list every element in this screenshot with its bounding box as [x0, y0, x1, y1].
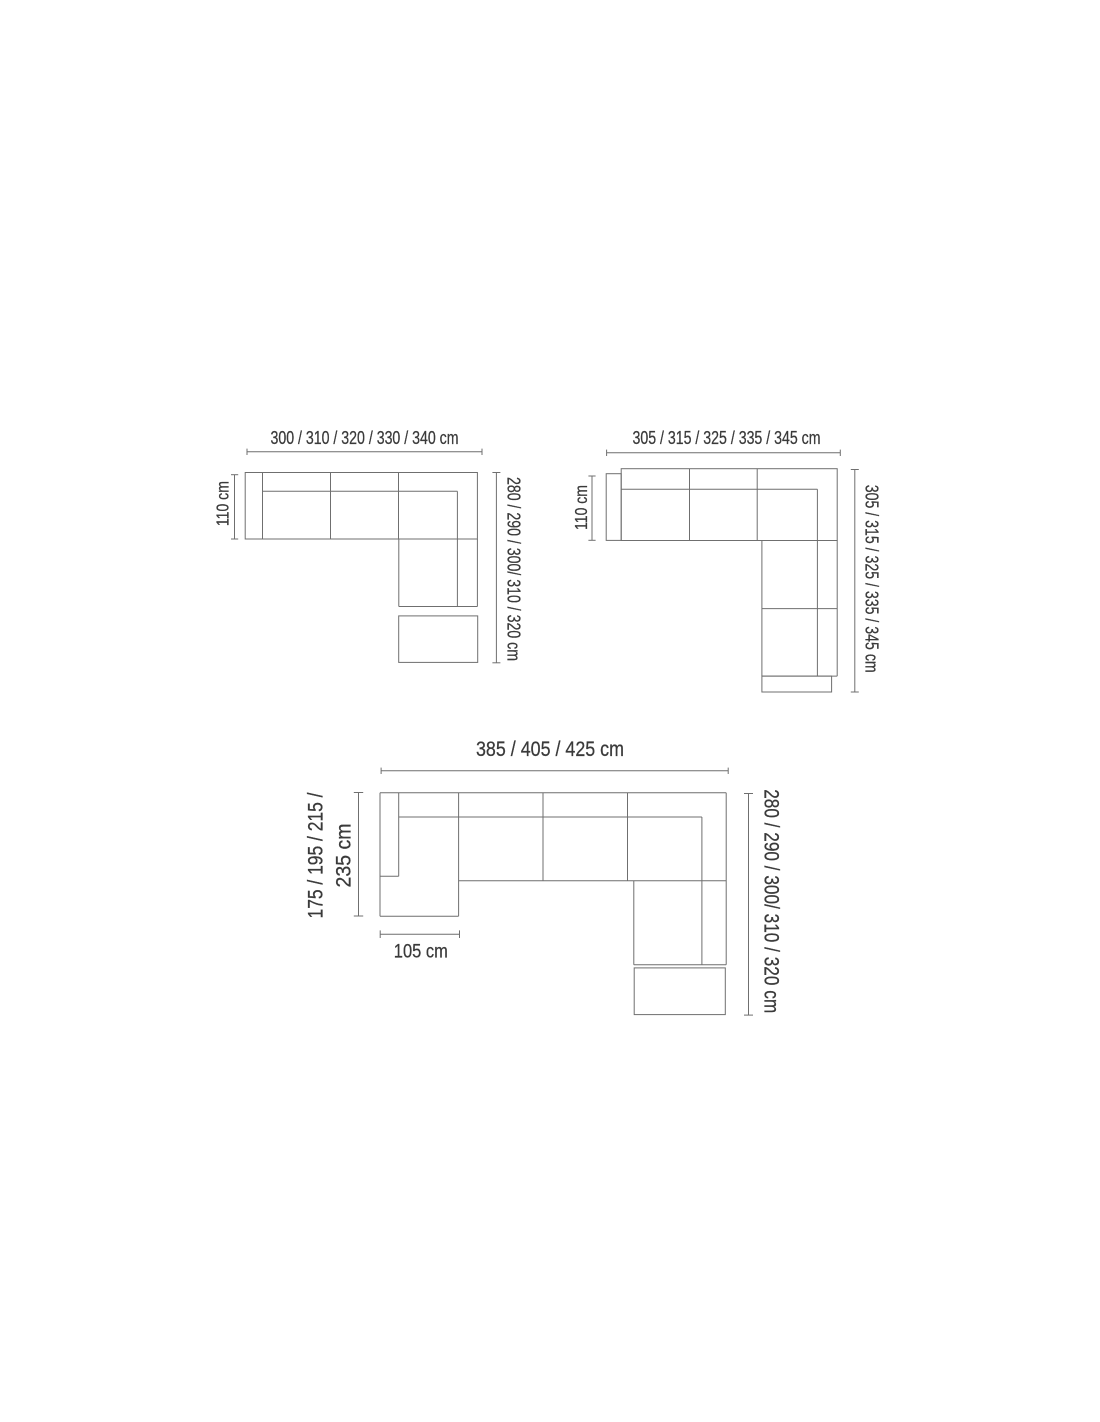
svg-text:385 / 405 / 425 cm: 385 / 405 / 425 cm [476, 737, 624, 761]
svg-text:280 / 290 / 300/ 310 / 320 cm: 280 / 290 / 300/ 310 / 320 cm [503, 477, 523, 661]
svg-text:110 cm: 110 cm [571, 485, 591, 530]
svg-text:305 / 315 / 325 / 335 / 345 cm: 305 / 315 / 325 / 335 / 345 cm [633, 428, 821, 448]
svg-text:280 / 290 / 300/ 310 / 320 cm: 280 / 290 / 300/ 310 / 320 cm [760, 789, 784, 1013]
svg-text:110 cm: 110 cm [213, 481, 233, 526]
svg-text:305 / 315 / 325 / 335 / 345 cm: 305 / 315 / 325 / 335 / 345 cm [861, 485, 881, 673]
svg-text:235 cm: 235 cm [333, 824, 356, 888]
svg-text:175 / 195 / 215 /: 175 / 195 / 215 / [304, 792, 327, 918]
svg-text:300 / 310 / 320 / 330 / 340 cm: 300 / 310 / 320 / 330 / 340 cm [271, 428, 459, 448]
svg-text:105 cm: 105 cm [394, 941, 448, 963]
